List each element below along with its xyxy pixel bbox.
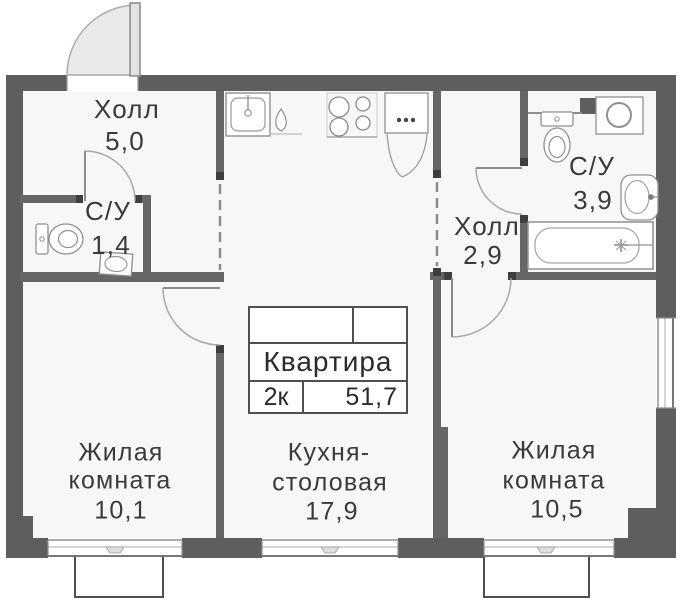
title-block-empty-cell-1 [250,308,354,342]
title-block-rooms-count: 2к [250,382,304,412]
window [48,539,182,557]
windows-bottom [48,539,614,557]
room-area-hall-2: 2,9 [463,242,503,268]
title-block-empty-cell-2 [354,308,406,342]
title-block-name: Квартира [250,344,406,382]
title-block-bottom-row: 2к 51,7 [250,382,406,412]
room-area-bathroom-1: 1,4 [91,232,131,258]
room-label-living-2-line1: Жилая [511,439,596,464]
room-area-living-2: 10,5 [530,498,583,523]
room-label-living-1-line1: Жилая [78,441,163,466]
entrance-opening [67,74,138,92]
title-block-total-area: 51,7 [304,383,406,412]
toilet-icon [36,224,83,254]
room-area-hall-1: 5,0 [105,128,145,154]
entrance-door-icon [67,3,140,76]
room-label-bathroom-2: С/У [569,153,615,179]
window [262,539,398,557]
room-area-living-1: 10,1 [94,499,147,524]
room-label-kitchen-line1: Кухня- [288,441,370,466]
washing-machine-icon [596,97,643,134]
title-block-empty-row [250,308,406,344]
room-label-hall-2: Холл [454,213,520,239]
balcony-left [75,556,163,597]
window [484,539,614,557]
bathtub-icon [528,222,653,269]
balcony-right [484,556,589,597]
room-label-bathroom-1: С/У [85,198,131,224]
room-label-kitchen-line2: столовая [272,471,388,496]
room-area-kitchen: 17,9 [305,500,358,525]
window-right [656,318,676,408]
room-label-living-1-line2: комната [69,469,172,494]
room-area-bathroom-2: 3,9 [573,187,613,213]
wash-basin-icon [621,175,658,220]
room-label-hall-1: Холл [94,96,160,122]
kitchen-sink-icon [226,93,270,136]
apartment-title-block: Квартира 2к 51,7 [248,306,408,414]
room-label-living-2-line2: комната [503,469,606,494]
floor-plan: Холл 5,0 С/У 1,4 Холл 2,9 С/У 3,9 Жилая … [0,0,682,600]
